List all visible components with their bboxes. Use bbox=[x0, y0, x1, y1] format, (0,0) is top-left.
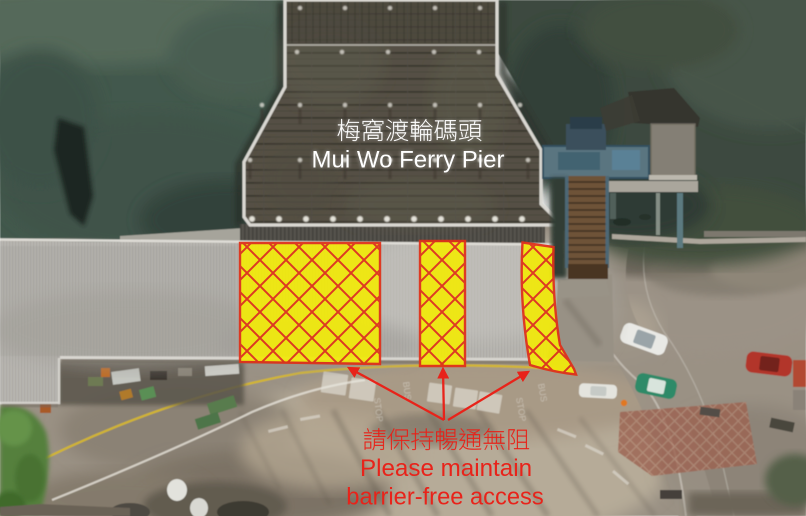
svg-text:Mui Wo Ferry Pier: Mui Wo Ferry Pier bbox=[312, 147, 505, 174]
svg-text:Please maintain: Please maintain bbox=[360, 455, 532, 482]
svg-text:barrier-free access: barrier-free access bbox=[346, 485, 543, 511]
